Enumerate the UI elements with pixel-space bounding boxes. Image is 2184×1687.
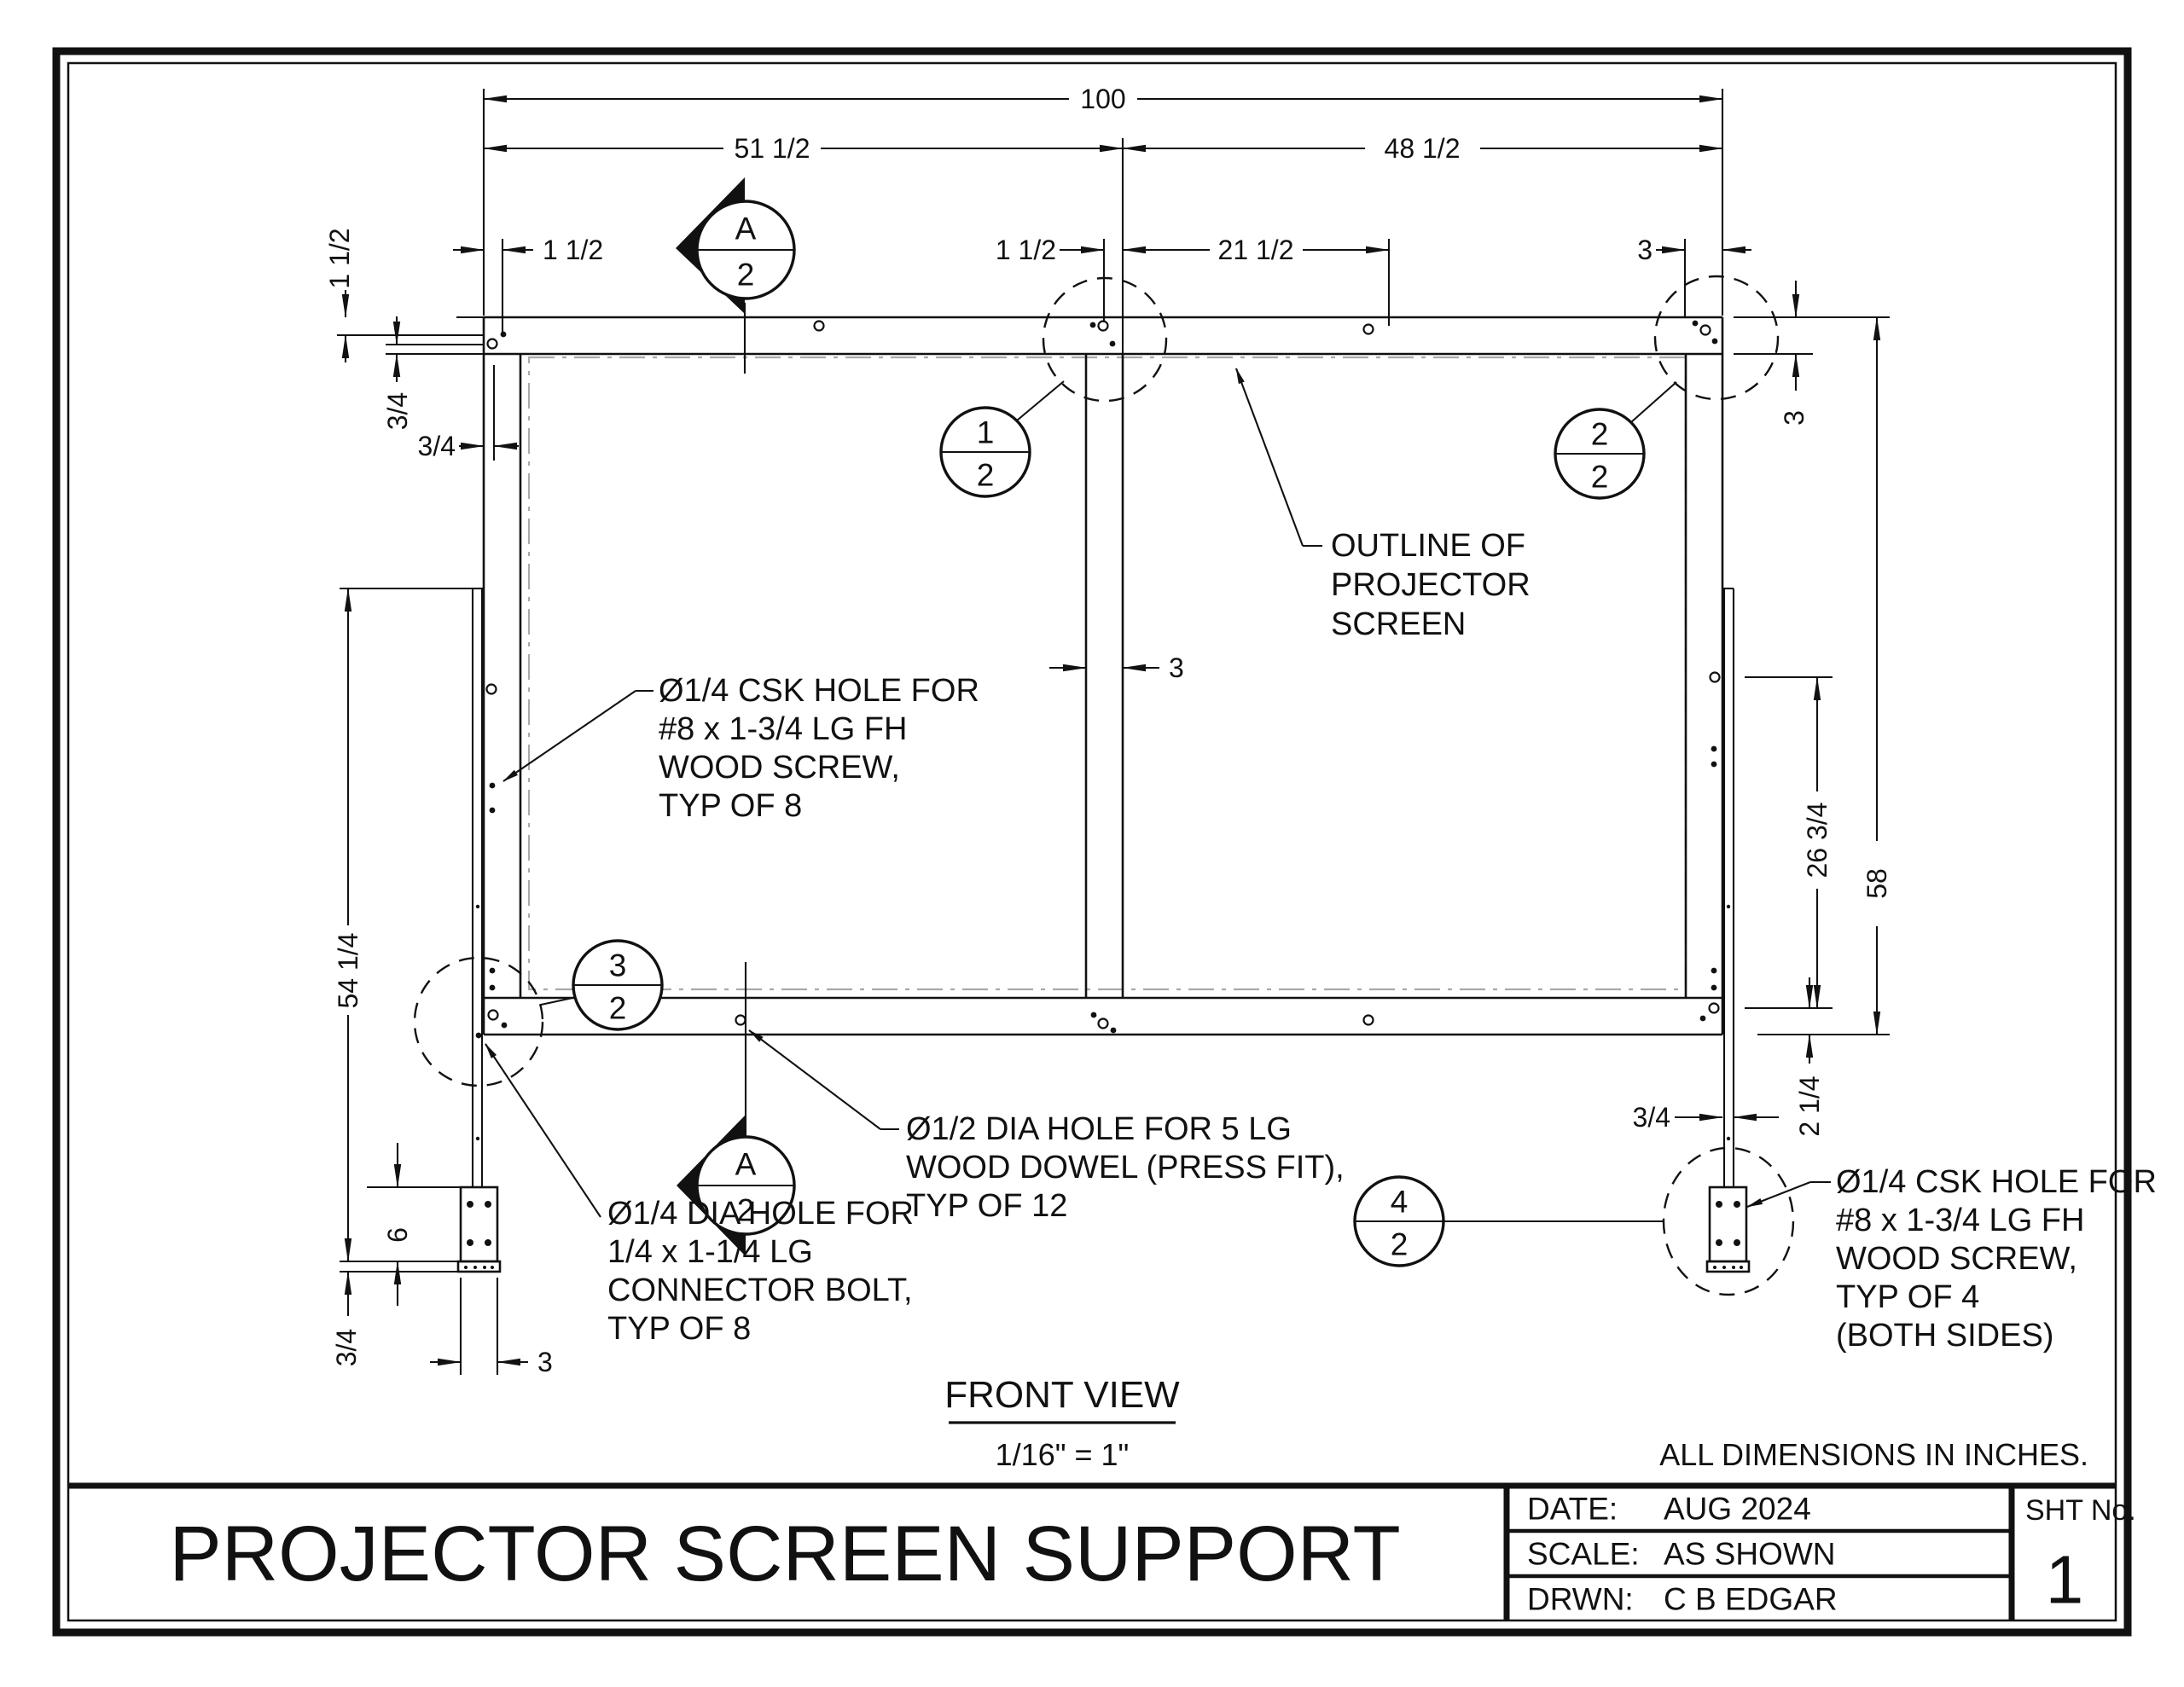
dim-mid-offset: 1 1/2 xyxy=(996,235,1056,265)
callout-line: PROJECTOR xyxy=(1331,567,1531,603)
dim-plate-thickness: 3/4 xyxy=(331,1329,362,1366)
balloon-3: 3 2 xyxy=(541,941,662,1029)
section-sheet: 2 xyxy=(737,258,755,293)
callout-line: #8 x 1-3/4 LG FH xyxy=(659,711,907,747)
callout-line: WOOD SCREW, xyxy=(659,750,900,786)
date-value: AUG 2024 xyxy=(1664,1492,1811,1527)
dim-overall-height: 58 xyxy=(1862,868,1892,899)
balloon-detail-number: 3 xyxy=(609,948,627,983)
callout-line: WOOD SCREW, xyxy=(1836,1241,2077,1277)
dim-cleat-thickness: 3/4 xyxy=(1633,1102,1670,1133)
view-label: FRONT VIEW 1/16" = 1" xyxy=(944,1374,1180,1472)
dim-cleat-length: 54 1/4 xyxy=(333,933,363,1009)
callout-line: WOOD DOWEL (PRESS FIT), xyxy=(906,1150,1345,1186)
left-foot-bolt-holes xyxy=(464,1201,494,1269)
balloon-4: 4 2 xyxy=(1355,1177,1664,1266)
callout-csk-hole-typ8: Ø1/4 CSK HOLE FOR #8 x 1-3/4 LG FH WOOD … xyxy=(503,673,979,824)
callout-line: Ø1/2 DIA HOLE FOR 5 LG xyxy=(906,1111,1292,1147)
dimensions-right: 3 58 26 3/4 2 1/4 3/4 xyxy=(1633,281,1892,1137)
dim-edge-offset: 1 1/2 xyxy=(543,235,603,265)
callout-line: (BOTH SIDES) xyxy=(1836,1318,2053,1354)
dim-block-width: 3 xyxy=(537,1347,553,1377)
callout-line: Ø1/4 CSK HOLE FOR xyxy=(659,673,979,709)
callout-line: TYP OF 4 xyxy=(1836,1279,1979,1315)
balloon-sheet-number: 2 xyxy=(977,458,995,493)
balloon-sheet-number: 2 xyxy=(1391,1227,1409,1262)
dim-horizontal-inset: 3/4 xyxy=(418,431,456,461)
view-title: FRONT VIEW xyxy=(944,1374,1180,1416)
left-foot-block xyxy=(461,1187,497,1261)
callout-line: OUTLINE OF xyxy=(1331,528,1525,564)
detail-circle-bottom-left-joint xyxy=(415,958,543,1086)
dim-stile-span: 26 3/4 xyxy=(1802,803,1833,878)
right-foot-bolt-holes xyxy=(1713,1201,1743,1269)
dim-center-width: 3 xyxy=(1169,652,1184,683)
dim-rail-inset: 2 1/4 xyxy=(1794,1075,1825,1136)
view-scale: 1/16" = 1" xyxy=(996,1437,1130,1472)
balloon-1: 1 2 xyxy=(941,381,1064,496)
callout-csk-hole-typ4: Ø1/4 CSK HOLE FOR #8 x 1-3/4 LG FH WOOD … xyxy=(1747,1164,2157,1354)
callout-dowel-hole: Ø1/2 DIA HOLE FOR 5 LG WOOD DOWEL (PRESS… xyxy=(749,1030,1345,1224)
drawing-sheet: 100 51 1/2 48 1/2 1 1/2 1 1/2 21 1/2 3 1… xyxy=(0,0,2184,1687)
scale-value: AS SHOWN xyxy=(1664,1537,1835,1572)
balloon-detail-number: 2 xyxy=(1591,417,1609,452)
section-marker-top: A 2 xyxy=(676,177,794,374)
scale-label: SCALE: xyxy=(1527,1537,1640,1572)
drawn-label: DRWN: xyxy=(1527,1582,1634,1617)
balloon-detail-number: 4 xyxy=(1391,1185,1409,1220)
callout-line: TYP OF 8 xyxy=(607,1311,751,1347)
callout-outline-of-screen: OUTLINE OF PROJECTOR SCREEN xyxy=(1236,368,1531,642)
dimension-center-member: 3 xyxy=(1049,652,1184,683)
detail-circle-right-joint xyxy=(1655,276,1778,399)
dim-right-offset: 3 xyxy=(1637,235,1653,265)
section-letter: A xyxy=(735,212,757,246)
dim-block-height: 6 xyxy=(382,1227,413,1243)
balloon-sheet-number: 2 xyxy=(1591,460,1609,495)
front-view-drawing: 100 51 1/2 48 1/2 1 1/2 1 1/2 21 1/2 3 1… xyxy=(0,0,2184,1687)
callout-line: TYP OF 12 xyxy=(906,1188,1067,1224)
dim-vertical-edge: 1 1/2 xyxy=(324,228,355,288)
dim-vertical-inset: 3/4 xyxy=(382,392,413,430)
balloon-detail-number: 1 xyxy=(977,415,995,450)
dim-left-span: 51 1/2 xyxy=(735,133,810,164)
callout-line: #8 x 1-3/4 LG FH xyxy=(1836,1203,2084,1238)
dim-overall-width: 100 xyxy=(1080,84,1125,114)
drawn-value: C B EDGAR xyxy=(1664,1582,1838,1617)
dim-right-span: 48 1/2 xyxy=(1385,133,1461,164)
sheet-number-value: 1 xyxy=(2046,1542,2084,1618)
callout-line: CONNECTOR BOLT, xyxy=(607,1272,913,1308)
dimensions-top: 100 51 1/2 48 1/2 1 1/2 1 1/2 21 1/2 3 xyxy=(453,84,1751,354)
right-foot-block xyxy=(1710,1187,1746,1261)
callout-connector-bolt: Ø1/4 DIA HOLE FOR 1/4 x 1-1/4 LG CONNECT… xyxy=(485,1044,914,1347)
date-label: DATE: xyxy=(1527,1492,1618,1527)
dimensions-note: ALL DIMENSIONS IN INCHES. xyxy=(1659,1437,2088,1472)
dim-mid-span: 21 1/2 xyxy=(1218,235,1294,265)
balloon-sheet-number: 2 xyxy=(609,991,627,1026)
callout-line: 1/4 x 1-1/4 LG xyxy=(607,1234,813,1270)
callout-line: Ø1/4 DIA HOLE FOR xyxy=(607,1196,914,1232)
drawing-title: PROJECTOR SCREEN SUPPORT xyxy=(169,1510,1400,1597)
dim-rail-height: 3 xyxy=(1779,410,1809,426)
section-letter: A xyxy=(735,1147,757,1182)
callout-line: TYP OF 8 xyxy=(659,788,802,824)
csk-hole-leader-target xyxy=(490,783,496,789)
balloon-2: 2 2 xyxy=(1555,382,1676,498)
connector-bolt-leader-target xyxy=(476,1033,482,1039)
callout-line: Ø1/4 CSK HOLE FOR xyxy=(1836,1164,2157,1200)
dowel-hole-leader-target xyxy=(736,1016,746,1025)
title-block: PROJECTOR SCREEN SUPPORT DATE: AUG 2024 … xyxy=(68,1486,2136,1620)
callout-line: SCREEN xyxy=(1331,606,1466,642)
sheet-number-label: SHT No. xyxy=(2025,1494,2136,1527)
